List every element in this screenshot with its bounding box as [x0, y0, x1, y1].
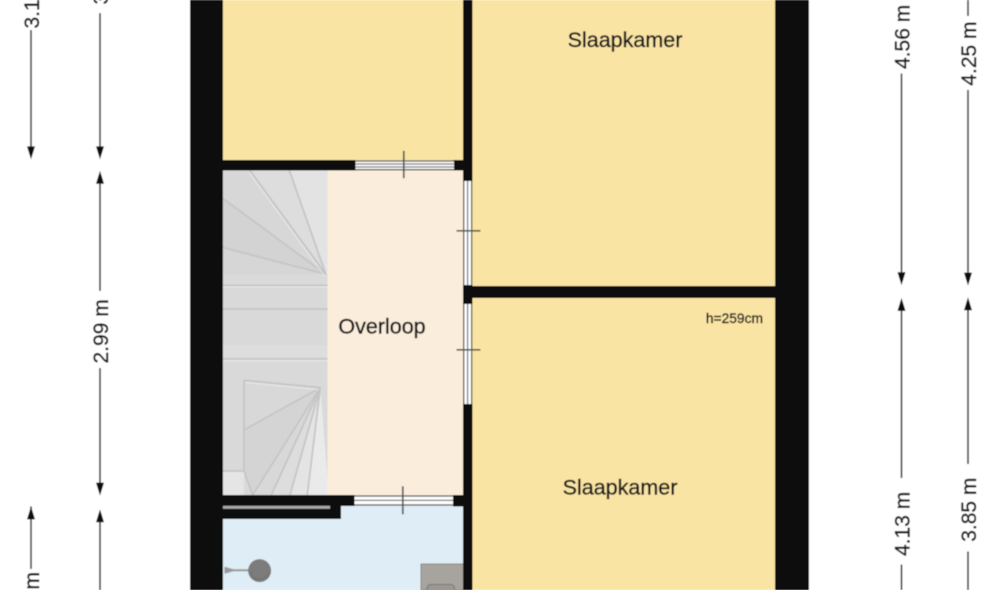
svg-text:h=259cm: h=259cm — [706, 311, 763, 326]
svg-text:Overloop: Overloop — [338, 315, 425, 339]
svg-text:4.56 m: 4.56 m — [892, 5, 915, 69]
svg-text:2.99 m: 2.99 m — [90, 299, 113, 363]
svg-text:m: m — [21, 572, 44, 590]
svg-text:4.25 m: 4.25 m — [958, 21, 981, 85]
svg-text:Slaapkamer: Slaapkamer — [563, 475, 678, 499]
svg-text:3.45 m: 3.45 m — [90, 0, 113, 5]
svg-text:3.85 m: 3.85 m — [958, 478, 981, 542]
svg-text:Slaapkamer: Slaapkamer — [568, 28, 683, 52]
svg-text:3.15 m: 3.15 m — [21, 0, 44, 29]
svg-text:4.13 m: 4.13 m — [892, 492, 915, 556]
